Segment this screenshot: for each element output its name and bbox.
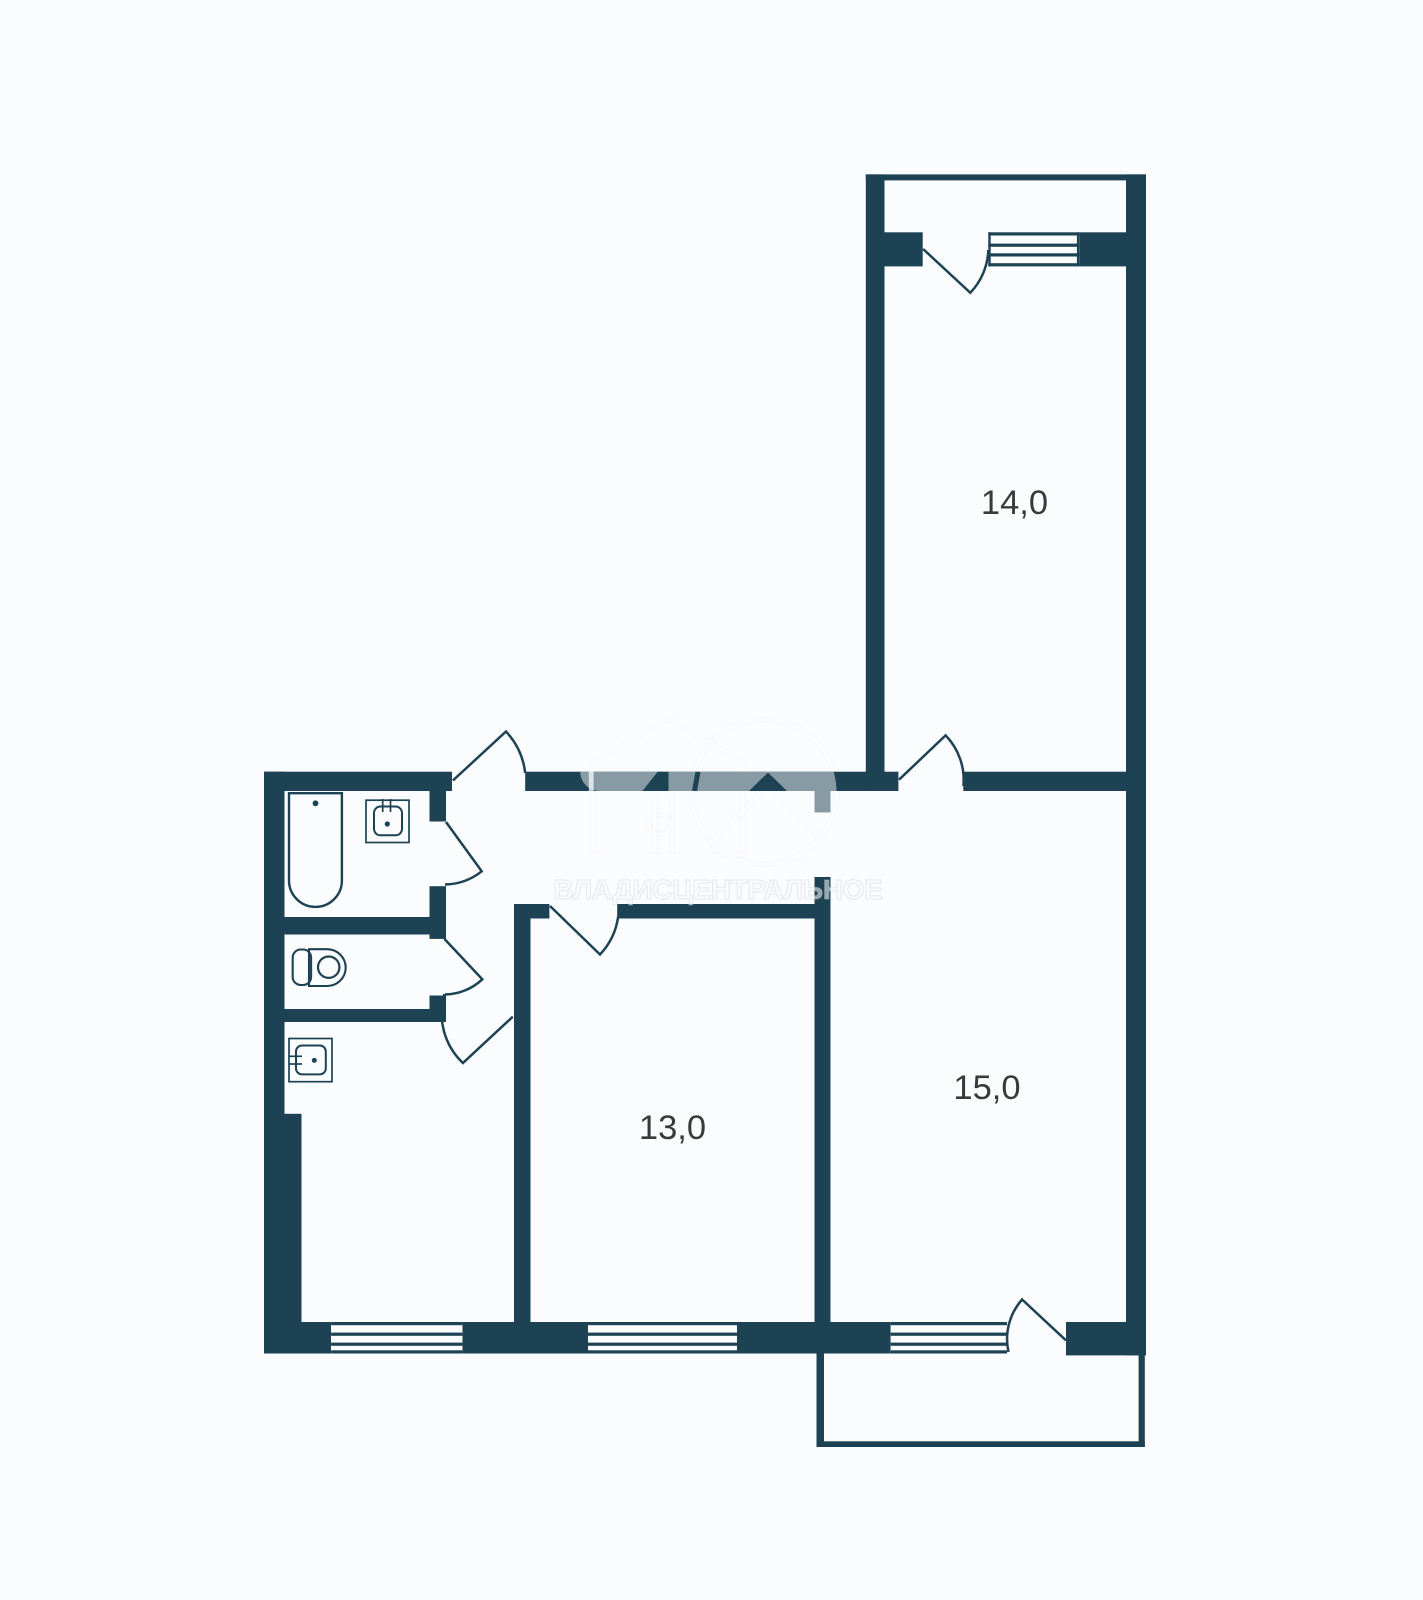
svg-text:13,0: 13,0 — [639, 1109, 706, 1147]
svg-text:15,0: 15,0 — [953, 1069, 1020, 1107]
svg-text:ВЛАДИСЦЕНТРАЛЬНОЕ: ВЛАДИСЦЕНТРАЛЬНОЕ — [553, 874, 882, 905]
svg-text:14,0: 14,0 — [981, 484, 1048, 522]
